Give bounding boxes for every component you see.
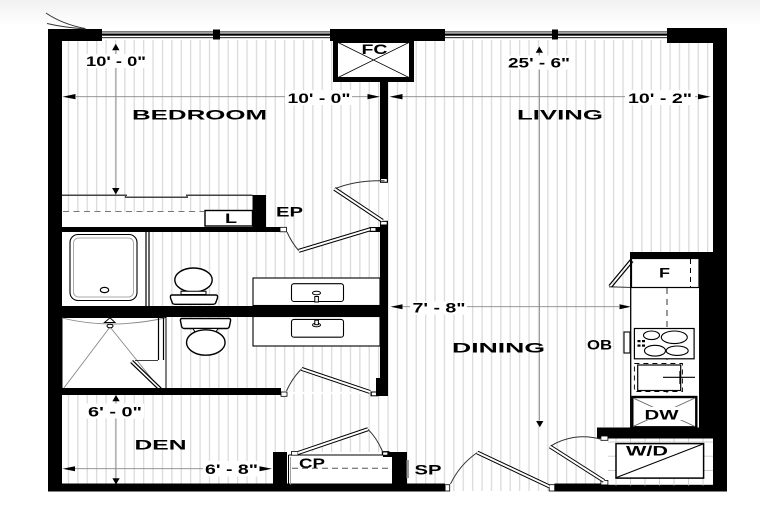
svg-text:L: L — [225, 210, 238, 226]
svg-text:F: F — [659, 265, 671, 281]
svg-text:DINING: DINING — [452, 340, 545, 356]
svg-text:10' - 2": 10' - 2" — [628, 91, 692, 106]
svg-text:10' - 0": 10' - 0" — [288, 91, 351, 106]
svg-text:10' - 0": 10' - 0" — [86, 54, 146, 69]
svg-text:LIVING: LIVING — [517, 107, 603, 123]
svg-text:6' - 0": 6' - 0" — [88, 405, 142, 420]
svg-text:DEN: DEN — [135, 437, 187, 453]
svg-text:CP: CP — [299, 455, 325, 471]
svg-text:W/D: W/D — [626, 443, 668, 459]
svg-text:OB: OB — [587, 337, 612, 353]
svg-text:DW: DW — [645, 407, 680, 423]
svg-text:FC: FC — [362, 41, 388, 57]
svg-text:SP: SP — [415, 462, 442, 478]
svg-text:EP: EP — [276, 204, 303, 220]
svg-text:BEDROOM: BEDROOM — [132, 107, 267, 123]
svg-text:25' - 6": 25' - 6" — [508, 56, 570, 71]
svg-text:7' - 8": 7' - 8" — [413, 301, 466, 316]
svg-text:6' - 8": 6' - 8" — [205, 462, 258, 477]
